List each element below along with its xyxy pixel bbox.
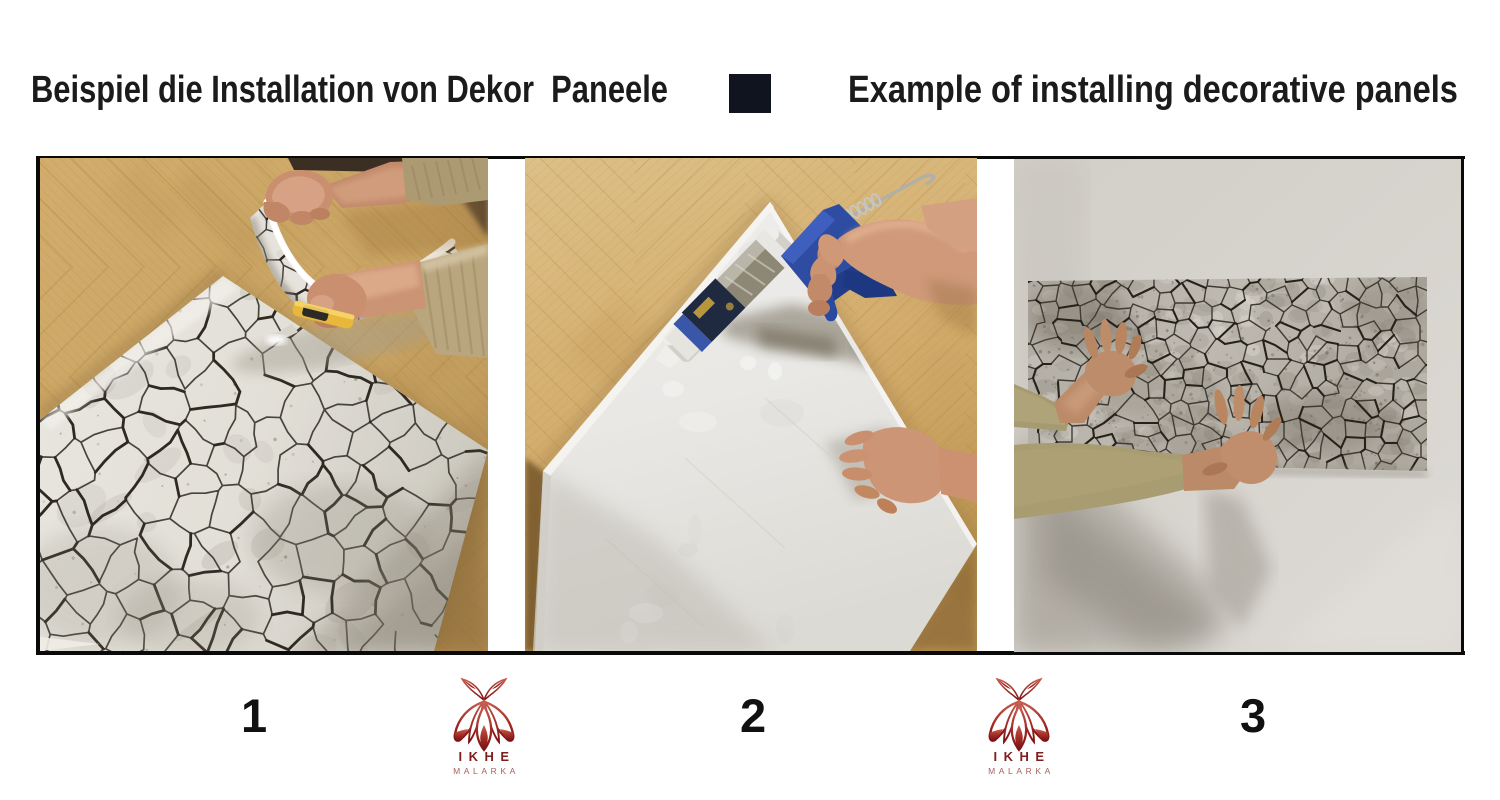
svg-text:MALARKA: MALARKA: [988, 766, 1054, 776]
svg-text:MALARKA: MALARKA: [453, 766, 519, 776]
svg-text:IKHE: IKHE: [458, 749, 515, 764]
svg-text:IKHE: IKHE: [993, 749, 1050, 764]
